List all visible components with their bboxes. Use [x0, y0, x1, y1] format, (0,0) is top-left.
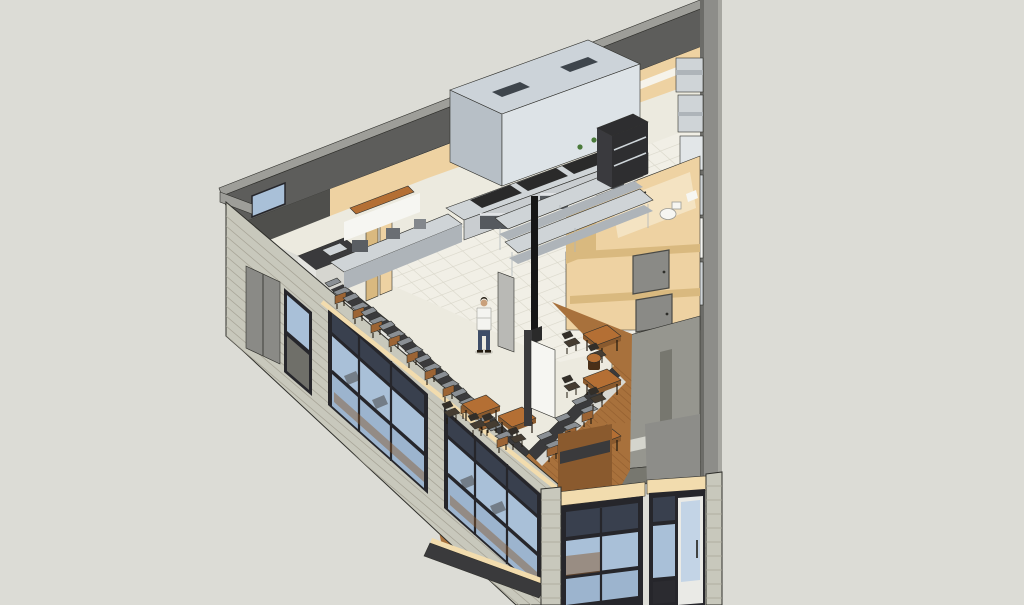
rendering-stage: 3D isometric cutaway rendering of a tria…: [0, 0, 1024, 605]
plant: [591, 137, 596, 142]
person-shoe: [477, 350, 483, 353]
floorplan-rendering: 3D isometric cutaway rendering of a tria…: [0, 0, 1024, 605]
countertop-equipment: [352, 240, 368, 252]
countertop-equipment: [386, 228, 400, 239]
south-window-bay-1: [561, 496, 643, 605]
stone-pier-1: [541, 487, 561, 605]
plant: [577, 144, 582, 149]
door-handle: [663, 271, 666, 274]
door-handle: [666, 313, 669, 316]
entry-glass-door-south: [678, 496, 703, 605]
toilet-tank: [672, 202, 681, 209]
south-window-bay-2: [649, 489, 705, 605]
facade-south: [541, 472, 722, 605]
divider-panel: [498, 272, 514, 352]
countertop-equipment: [414, 219, 426, 229]
barrel-table: [587, 354, 601, 371]
stone-pier-2: [706, 472, 722, 605]
person-shoe: [485, 350, 491, 353]
toilet: [660, 209, 676, 220]
